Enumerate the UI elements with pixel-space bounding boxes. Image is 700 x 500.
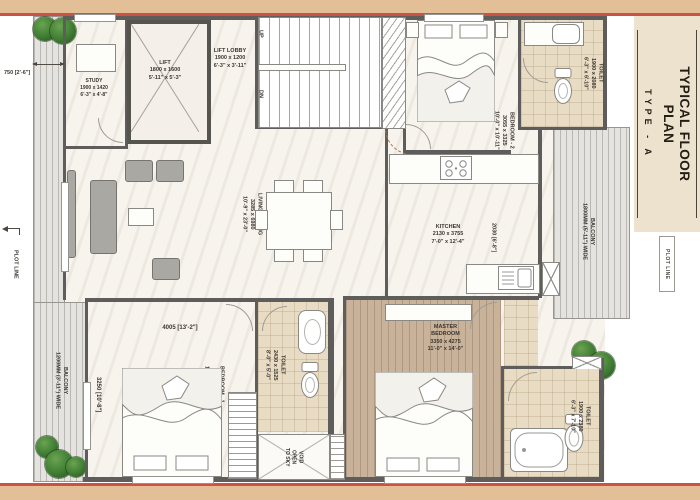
bathtub-icon <box>510 428 568 472</box>
title-rule-bottom <box>637 30 638 218</box>
floor-plan-canvas: TYPICAL FLOOR PLAN TYPE - A PLOT LINE BA… <box>0 0 700 500</box>
wc-icon <box>298 362 322 400</box>
window <box>384 476 466 484</box>
title-block: TYPICAL FLOOR PLAN TYPE - A <box>634 16 700 232</box>
arrow-right-icon <box>60 62 65 66</box>
bedroom1-width-dim: 4005 [13'-2"] <box>140 324 220 332</box>
wall <box>63 146 127 149</box>
window <box>83 382 91 450</box>
balcony-right-label: BALCONY1800MM (5'-11") WIDE <box>580 172 595 292</box>
sofa-icon <box>90 180 117 254</box>
plot-line-right-box: PLOT LINE <box>659 236 675 292</box>
title-rule-top <box>696 30 697 218</box>
arrow-left-icon <box>32 62 37 66</box>
armchair-icon <box>152 258 180 280</box>
wc-icon <box>552 68 574 106</box>
staircase <box>258 17 382 128</box>
top-border-band <box>0 0 700 13</box>
bedroom1-height-dim: 3250 [10'-8"] <box>94 362 102 428</box>
dining-chair <box>255 210 268 230</box>
lift-label: LIFT1800 x 16005'-11" x 5'-3" <box>132 60 198 82</box>
window <box>74 14 116 22</box>
bed-icon <box>375 372 473 477</box>
study-label: STUDY1900 x 14206'-3" x 4'-8" <box>62 78 126 98</box>
basin-icon <box>552 24 580 44</box>
wardrobe-icon <box>330 434 345 480</box>
kitchen-dim-label: 2030 [6'-8"] <box>489 212 496 264</box>
duct-x-icon <box>542 262 560 296</box>
stove-icon <box>440 156 472 180</box>
toilet-bed2-label: TOILET1900 x 20806'-3" x 6'-10" <box>581 28 603 118</box>
dining-chair <box>330 210 343 230</box>
void-label: VOIDOPENTO SKY <box>283 437 303 477</box>
duct-shaft <box>382 17 406 129</box>
plan-type-label: TYPE - A <box>643 89 653 159</box>
dining-chair <box>274 180 294 193</box>
dining-table-icon <box>266 192 332 250</box>
dining-chair <box>303 249 323 262</box>
wall <box>603 16 607 130</box>
wall <box>385 129 388 296</box>
bed-icon <box>417 20 495 122</box>
bottom-border-band <box>0 486 700 500</box>
wardrobe-icon <box>228 392 257 479</box>
bed-icon <box>122 368 222 477</box>
plan-title-line2: PLAN <box>660 66 676 181</box>
dining-chair <box>274 249 294 262</box>
toilet-common-label: TOILET2430 x 15258'-0" x 5'-0" <box>263 322 285 408</box>
balcony-left-label: BALCONY1200MM (3'-11") WIDE <box>53 306 68 456</box>
stair-landing-rail <box>258 64 346 71</box>
plot-line-leader <box>19 228 20 235</box>
coffee-table <box>128 208 154 226</box>
balcony-width-dim: 750 [2'-6"] <box>4 70 60 77</box>
kitchen-label: KITCHEN2130 x 37557'-0" x 12'-4" <box>406 224 490 246</box>
toilet-master-label: TOILET1900 x 23806'-3" x 7'-10" <box>568 380 590 452</box>
study-desk <box>76 44 116 72</box>
arrow-left-icon <box>2 226 8 232</box>
dining-chair <box>303 180 323 193</box>
wall <box>599 358 604 482</box>
void-open-to-sky: VOIDOPENTO SKY <box>258 434 330 480</box>
wardrobe-icon <box>385 304 472 321</box>
plan-title-line1: TYPICAL FLOOR <box>676 66 692 181</box>
armchair-icon <box>125 160 153 182</box>
duct-x-icon <box>572 356 602 370</box>
plot-line-left-label: PLOT LINE <box>11 238 18 290</box>
window <box>61 182 69 272</box>
armchair-icon <box>156 160 184 182</box>
tree-icon <box>66 457 86 477</box>
window <box>424 14 484 22</box>
side-table <box>495 22 508 38</box>
stairs-dn-label: DN <box>256 84 263 104</box>
dressing-passage-floor <box>504 300 538 366</box>
lift-lobby-label: LIFT LOBBY1900 x 12006'-3" x 3'-11" <box>203 48 257 70</box>
plot-line-right-label: PLOT LINE <box>664 249 670 280</box>
window <box>132 476 214 484</box>
basin-icon <box>298 310 326 354</box>
dim-line <box>34 64 62 65</box>
stairs-up-label: UP <box>256 24 263 44</box>
wall <box>518 127 606 130</box>
side-table <box>406 22 419 38</box>
sink-icon <box>498 266 534 290</box>
